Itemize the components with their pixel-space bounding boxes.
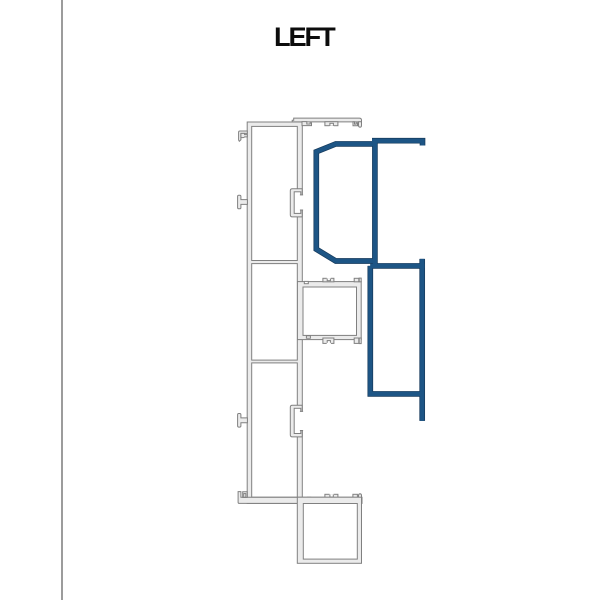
svg-text:LEFT: LEFT bbox=[274, 21, 336, 52]
